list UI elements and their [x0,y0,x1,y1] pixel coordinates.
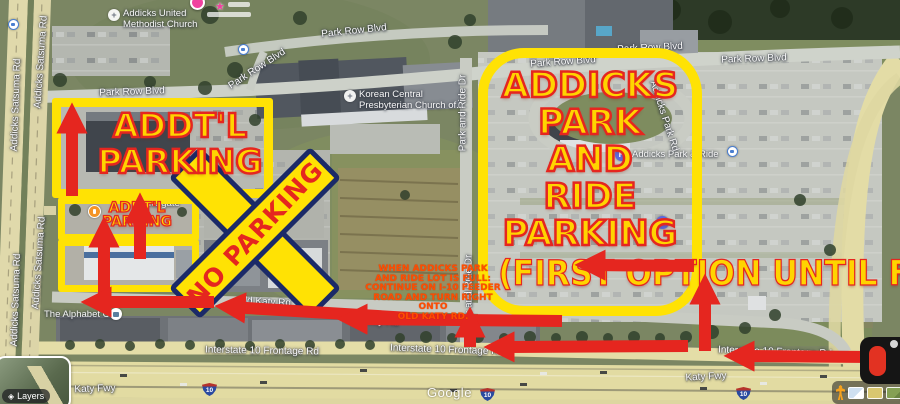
map-viewport[interactable]: Addicks Satsuma Rd Addicks Satsuma Rd Ad… [0,0,900,404]
pegman-icon[interactable] [836,385,845,400]
poi-label: The Alphabet Ch [44,310,115,321]
poi-korean-church[interactable]: + Korean Central Presbyterian Church of.… [344,90,464,111]
layers-icon: ◈ [8,392,14,401]
map-type-thumbnail[interactable] [848,387,864,399]
addtl-parking-large-label: ADDT'L PARKING [90,108,270,180]
road-label: Park Row Blvd [721,52,787,65]
poi-label: Methodist Church [123,19,197,30]
park-and-ride-box-title: ADDICKS PARK AND RIDE PARKING (FIRST OPT… [488,58,692,293]
poi-alphabet[interactable]: The Alphabet Ch [44,310,115,321]
edge-overlay-widget[interactable] [860,337,900,384]
storefront-icon[interactable] [110,308,122,320]
road-label: Park and Ride Dr [458,75,469,152]
poi-methodist-church[interactable]: + Addicks United Methodist Church [108,9,197,30]
overflow-instructions: WHEN ADDICKS PARK AND RIDE LOT IS FULL: … [352,265,514,322]
map-type-thumbnail[interactable] [867,387,883,399]
google-watermark: Google [427,385,472,400]
layers-button[interactable]: ◈ Layers [0,356,71,404]
map-type-thumbnail[interactable] [886,387,900,399]
church-icon: + [344,90,356,102]
bus-stop-icon[interactable] [727,146,738,157]
road-label: Park Row Blvd [99,85,165,98]
poi-label: Presbyterian Church of... [359,100,464,111]
church-icon: + [108,9,120,21]
park-and-ride-box-subtitle: (FIRST OPTION UNTIL FULL) [498,256,682,293]
poi-label: Korean Central [359,89,423,100]
layers-label: Layers [17,391,44,401]
road-label: Interstate 10 Frontage Rd [205,345,319,358]
gray-dot-icon [890,340,898,348]
blurred-rating-text [228,2,250,7]
addtl-parking-small-label: ADDT'L PARKING [90,201,184,229]
bus-stop-icon[interactable] [238,44,249,55]
road-label: Katy Fwy [74,383,115,395]
bus-stop-icon[interactable] [8,19,19,30]
blurred-poi-name [207,12,251,17]
red-pill-icon [869,346,886,376]
map-controls-bar [832,381,900,404]
poi-label: Addicks United [123,8,186,19]
road-label: Katy Fwy [685,370,727,383]
